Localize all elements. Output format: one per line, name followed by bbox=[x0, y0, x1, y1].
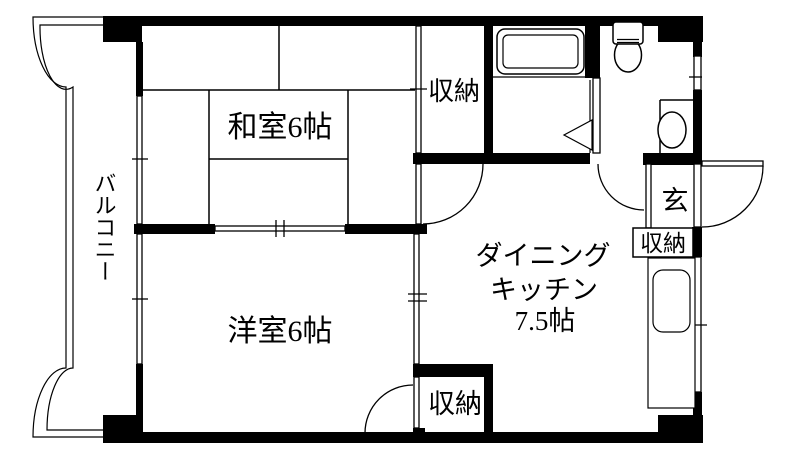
sliding-door-western-room-dk bbox=[414, 234, 419, 364]
entrance-door-frame bbox=[694, 164, 701, 227]
door-leaf-bottom-closet bbox=[414, 377, 419, 428]
label-dining-kitchen-line3: 7.5帖 bbox=[515, 306, 576, 336]
sliding-door-between-rooms bbox=[215, 226, 345, 231]
floor-plan: 和室6帖 洋室6帖 ダイニング キッチン 7.5帖 収納 収納 収納 玄 バルコ… bbox=[0, 0, 800, 460]
wall-right-upper bbox=[693, 42, 702, 57]
wall-horizontal-mid-right bbox=[643, 153, 702, 165]
label-closet-top: 収納 bbox=[428, 77, 480, 106]
entrance-door-leaf bbox=[702, 161, 763, 166]
label-closet-bottom: 収納 bbox=[428, 389, 482, 419]
wall-bottom bbox=[136, 432, 666, 443]
label-balcony: バルコニー bbox=[92, 172, 117, 282]
label-western-room: 洋室6帖 bbox=[228, 315, 333, 348]
wall-horizontal-mid-left bbox=[413, 153, 590, 164]
wall-bottom-closet-left-post bbox=[413, 428, 425, 443]
window-toilet bbox=[694, 56, 701, 90]
wall-bath-right bbox=[585, 26, 600, 78]
label-dining-kitchen-line1: ダイニング bbox=[476, 241, 611, 271]
wall-room-divider-left bbox=[136, 224, 215, 234]
label-japanese-room: 和室6帖 bbox=[228, 111, 333, 144]
floor-plan-page: 和室6帖 洋室6帖 ダイニング キッチン 7.5帖 収納 収納 収納 玄 バルコ… bbox=[0, 0, 800, 460]
window-balcony-japanese-room bbox=[137, 96, 142, 224]
toilet-tank-icon bbox=[613, 22, 643, 44]
wall-bottom-closet-top bbox=[413, 364, 493, 377]
wall-corner-top-right bbox=[658, 16, 703, 42]
wall-room-divider-right bbox=[345, 224, 427, 234]
wall-bottom-closet-right bbox=[484, 377, 493, 443]
entrance-hall-partition bbox=[646, 164, 651, 228]
label-dining-kitchen-line2: キッチン bbox=[490, 275, 598, 305]
wall-bath-left bbox=[484, 26, 493, 153]
door-leaf-japanese-room-dk bbox=[416, 164, 421, 224]
bathtub-inner-line bbox=[503, 35, 578, 68]
wall-corner-top-left bbox=[103, 16, 142, 42]
kitchen-sink-icon bbox=[653, 270, 690, 332]
washbasin-icon bbox=[658, 112, 686, 148]
toilet-door bbox=[593, 78, 600, 153]
label-closet-entrance: 収納 bbox=[640, 231, 686, 256]
wall-left-upper bbox=[136, 42, 143, 96]
label-entrance: 玄 bbox=[662, 186, 689, 216]
